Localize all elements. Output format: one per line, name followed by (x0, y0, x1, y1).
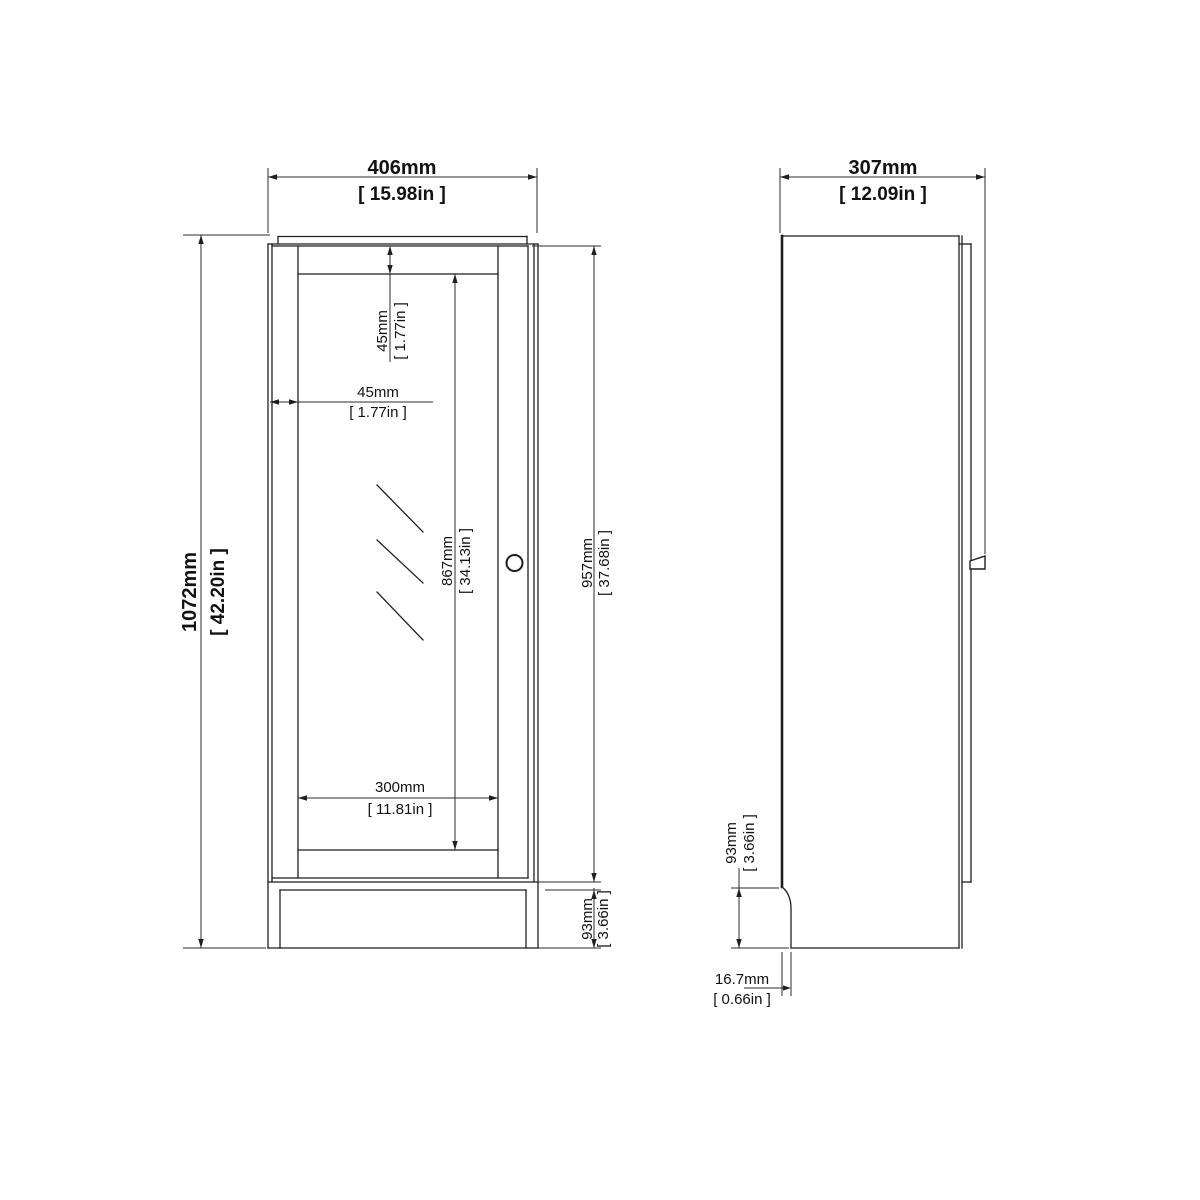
arrowhead (736, 888, 741, 897)
cabinet-technical-drawing: 406mm [ 15.98in ] 1072mm [ 42.20in ] 957… (0, 0, 1200, 1200)
dim-label-mm: 957mm (579, 538, 596, 588)
arrowhead (591, 873, 596, 882)
dim-label-mm: 1072mm (179, 552, 201, 632)
dim-label-in: [ 42.20in ] (208, 548, 229, 636)
glass-reflection-3 (377, 592, 423, 640)
dim-side-plinth: 93mm [ 3.66in ] (723, 814, 789, 948)
dim-label-in: [ 3.66in ] (595, 890, 612, 948)
dim-label-mm: 45mm (357, 384, 399, 401)
door-knob-side (970, 556, 985, 569)
dim-label-mm: 45mm (374, 310, 391, 352)
dim-label-in: [ 0.66in ] (713, 991, 771, 1008)
arrowhead (489, 795, 498, 800)
side-door (959, 244, 985, 882)
dim-front-glass-height: 867mm [ 34.13in ] (439, 274, 474, 850)
front-view: 406mm [ 15.98in ] 1072mm [ 42.20in ] 957… (179, 157, 613, 948)
arrowhead (783, 985, 791, 990)
dim-side-depth: 307mm [ 12.09in ] (780, 157, 985, 554)
dim-label-in: [ 1.77in ] (392, 302, 409, 360)
arrowhead (298, 795, 307, 800)
glass-reflection-lines (377, 485, 423, 640)
side-base-curve (782, 887, 791, 948)
dim-label-mm: 93mm (723, 822, 740, 864)
arrowhead (387, 265, 392, 274)
dim-front-plinth: 93mm [ 3.66in ] (538, 888, 612, 948)
front-plinth (280, 890, 526, 948)
arrowhead (976, 174, 985, 179)
door-knob-front (507, 555, 523, 571)
arrowhead (198, 235, 203, 244)
dim-label-in: [ 3.66in ] (741, 814, 758, 872)
dim-front-stile: 45mm [ 1.77in ] (270, 384, 433, 421)
dim-label-in: [ 37.68in ] (596, 530, 613, 596)
dim-front-height: 1072mm [ 42.20in ] (179, 235, 270, 948)
dim-label-mm: 867mm (439, 536, 456, 586)
arrowhead (591, 246, 596, 255)
side-view: 307mm [ 12.09in ] 93mm [ 3.66in ] 16.7mm… (713, 157, 985, 1008)
arrowhead (528, 174, 537, 179)
dim-label-mm: 16.7mm (715, 971, 769, 988)
arrowhead (289, 399, 298, 404)
drawing-page: 406mm [ 15.98in ] 1072mm [ 42.20in ] 957… (0, 0, 1200, 1200)
side-body (782, 236, 962, 948)
dim-label-in: [ 1.77in ] (349, 404, 407, 421)
arrowhead (387, 246, 392, 255)
arrowhead (198, 939, 203, 948)
dim-label-in: [ 12.09in ] (839, 184, 927, 205)
dim-front-glass-width: 300mm [ 11.81in ] (298, 779, 498, 818)
arrowhead (452, 274, 457, 283)
dim-front-width: 406mm [ 15.98in ] (268, 157, 537, 233)
dim-front-top-rail: 45mm [ 1.77in ] (374, 246, 409, 362)
dim-label-mm: 93mm (579, 898, 596, 940)
dim-label-in: [ 11.81in ] (368, 801, 433, 818)
dim-front-door-height: 957mm [ 37.68in ] (532, 246, 613, 882)
arrowhead (780, 174, 789, 179)
dim-label-mm: 300mm (375, 779, 425, 796)
arrowhead (736, 939, 741, 948)
glass-reflection-2 (377, 540, 423, 583)
dim-label-in: [ 15.98in ] (358, 184, 446, 205)
dim-label-mm: 307mm (849, 157, 918, 179)
arrowhead (268, 174, 277, 179)
dim-label-in: [ 34.13in ] (457, 528, 474, 594)
glass-reflection-1 (377, 485, 423, 532)
dim-label-mm: 406mm (368, 157, 437, 179)
dim-side-base-inset: 16.7mm [ 0.66in ] (713, 952, 791, 1008)
arrowhead (452, 841, 457, 850)
